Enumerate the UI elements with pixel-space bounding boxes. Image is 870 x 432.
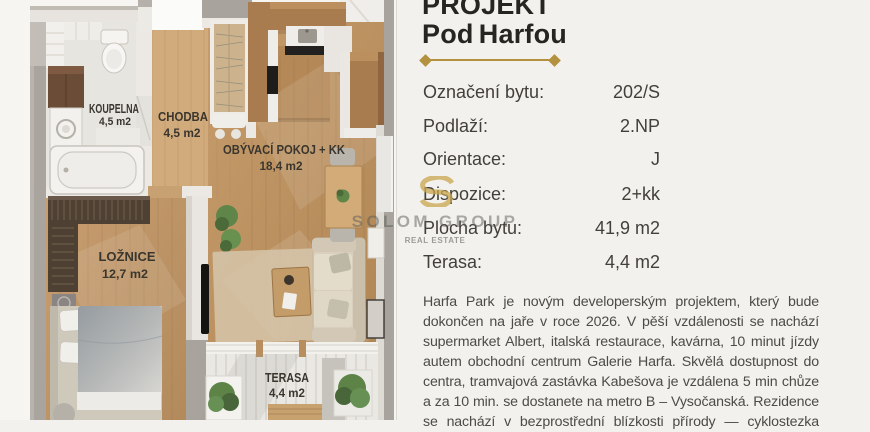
svg-text:4,4 m2: 4,4 m2: [269, 388, 305, 400]
svg-text:LOŽNICE: LOŽNICE: [99, 249, 156, 264]
svg-text:18,4 m2: 18,4 m2: [260, 161, 303, 173]
svg-text:4,5 m2: 4,5 m2: [99, 116, 131, 128]
svg-text:CHODBA: CHODBA: [158, 109, 209, 124]
svg-text:12,7 m2: 12,7 m2: [102, 269, 148, 281]
svg-text:OBÝVACÍ POKOJ + KK: OBÝVACÍ POKOJ + KK: [223, 142, 346, 157]
svg-text:KOUPELNA: KOUPELNA: [89, 101, 139, 116]
svg-text:TERASA: TERASA: [265, 370, 309, 385]
svg-text:4,5 m2: 4,5 m2: [164, 128, 201, 140]
